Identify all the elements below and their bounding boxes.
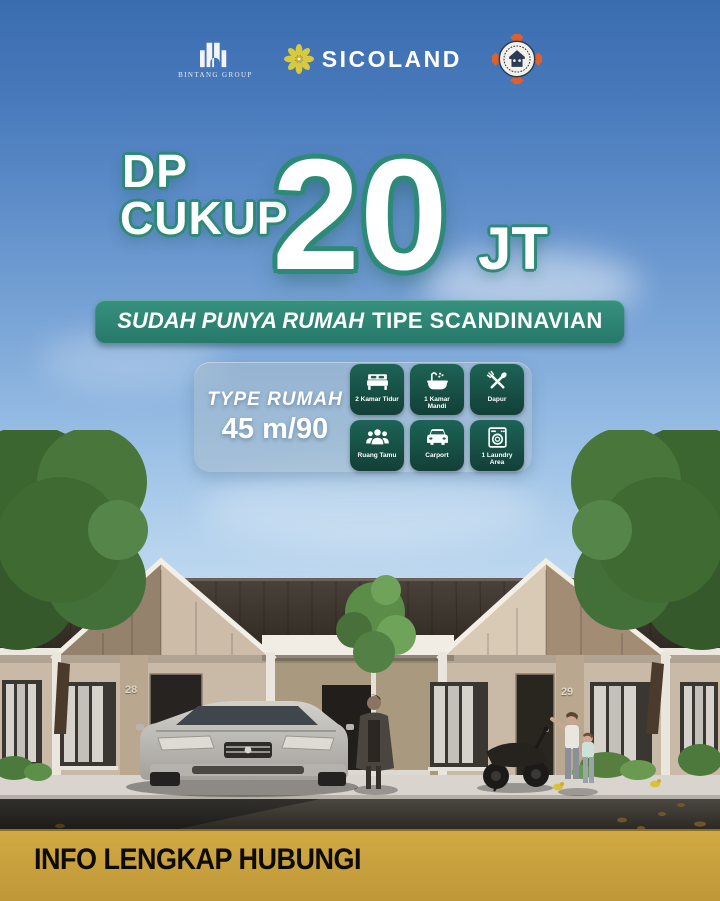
- cutlery-icon: [485, 369, 510, 394]
- sicoland-label: SICOLAND: [322, 46, 462, 73]
- feature-label: 1 Kamar Mandi: [414, 396, 460, 411]
- sidewalk: [0, 775, 720, 797]
- left-edge-window: [2, 680, 42, 766]
- developer-association-seal-icon: [492, 34, 542, 84]
- feature-label: Dapur: [474, 396, 520, 403]
- headline-amount: 20: [272, 140, 448, 290]
- feature-tile-bathroom: 1 Kamar Mandi: [410, 364, 464, 415]
- footer-contact-label: INFO LENGKAP HUBUNGI: [34, 843, 361, 876]
- house-render-scene: [0, 430, 720, 835]
- house-number-29: 29: [561, 686, 573, 698]
- headline-cukup: CUKUP: [120, 197, 289, 241]
- bintang-group-logo: BINTANG GROUP: [178, 39, 253, 79]
- bed-icon: [365, 369, 390, 394]
- bintang-group-label: BINTANG GROUP: [178, 71, 253, 79]
- flower-icon: [283, 43, 315, 75]
- house-number-28: 28: [125, 684, 137, 696]
- bathtub-icon: [425, 369, 450, 394]
- house29-window-left: [428, 682, 490, 771]
- tagline-banner: SUDAH PUNYA RUMAHTIPE SCANDINAVIAN: [95, 300, 624, 343]
- headline-unit: JT: [478, 220, 548, 277]
- tagline-italic: SUDAH PUNYA RUMAH: [117, 308, 364, 333]
- tagline-bold: TIPE SCANDINAVIAN: [372, 308, 603, 333]
- logo-row: BINTANG GROUP SICOLAND: [0, 34, 720, 84]
- bintang-building-icon: [192, 39, 238, 69]
- property-poster: BINTANG GROUP SICOLAND: [0, 0, 720, 901]
- type-rumah-label: TYPE RUMAH: [200, 389, 350, 411]
- child: [582, 733, 594, 783]
- headline-dp: DP: [122, 150, 188, 194]
- sicoland-logo: SICOLAND: [283, 43, 462, 75]
- footer-bar: INFO LENGKAP HUBUNGI: [0, 829, 720, 901]
- feature-label: 2 Kamar Tidur: [354, 396, 400, 403]
- feature-tile-kitchen: Dapur: [470, 364, 524, 415]
- feature-tile-bedroom: 2 Kamar Tidur: [350, 364, 404, 415]
